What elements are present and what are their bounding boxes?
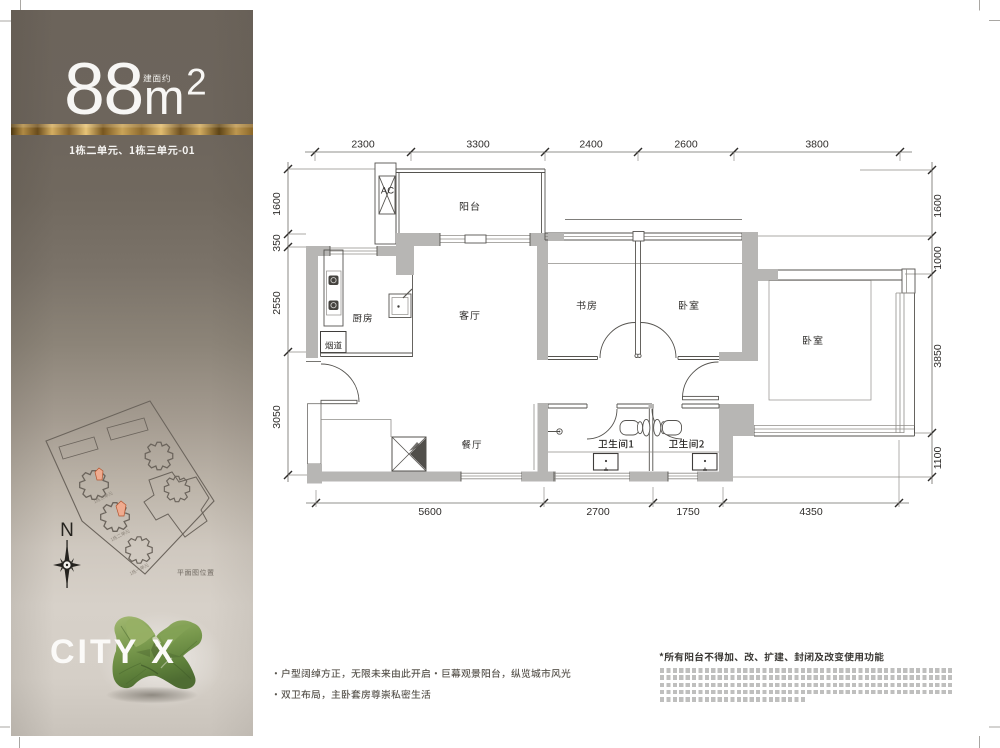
svg-text:2300: 2300 bbox=[351, 139, 375, 151]
svg-text:3300: 3300 bbox=[466, 139, 490, 151]
svg-text:350: 350 bbox=[271, 234, 283, 252]
svg-text:88m2: 88m2 bbox=[64, 47, 205, 130]
svg-text:CITY X: CITY X bbox=[50, 633, 177, 671]
svg-text:3050: 3050 bbox=[271, 405, 283, 429]
svg-text:2400: 2400 bbox=[579, 139, 603, 151]
svg-text:1000: 1000 bbox=[932, 246, 944, 270]
svg-text:1100: 1100 bbox=[932, 447, 944, 470]
svg-text:4350: 4350 bbox=[799, 506, 823, 518]
svg-text:1600: 1600 bbox=[932, 194, 944, 218]
svg-text:5600: 5600 bbox=[418, 506, 442, 518]
svg-text:2700: 2700 bbox=[586, 506, 610, 518]
svg-text:1600: 1600 bbox=[271, 192, 283, 216]
svg-text:3850: 3850 bbox=[932, 344, 944, 368]
svg-text:AC: AC bbox=[381, 186, 394, 197]
svg-text:1750: 1750 bbox=[676, 506, 700, 518]
svg-text:3800: 3800 bbox=[805, 139, 829, 151]
svg-text:N: N bbox=[60, 520, 74, 541]
svg-text:2550: 2550 bbox=[271, 291, 283, 315]
svg-text:2600: 2600 bbox=[674, 139, 698, 151]
